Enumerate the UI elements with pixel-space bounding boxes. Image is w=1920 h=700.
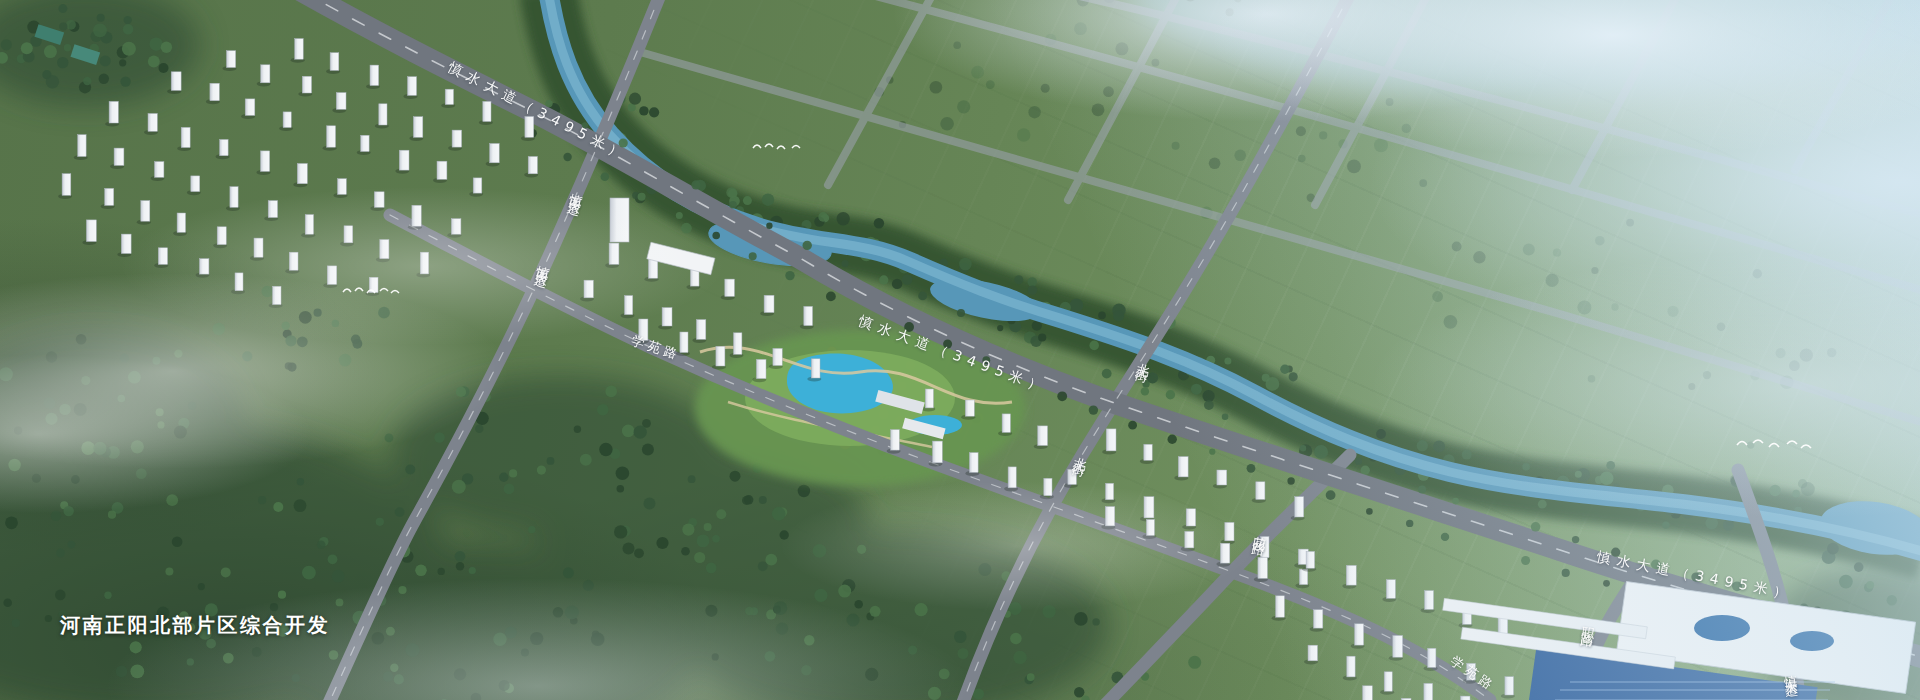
road-label-zhigao-road: 职高路	[1579, 616, 1598, 627]
road-label-bei-street-1: 北大街	[1136, 351, 1156, 365]
label-layer: 慎水大道（3495米） 慎水大道（3495米） 慎水大道（3495米） 慎西大道…	[0, 0, 1920, 700]
project-title: 河南正阳北部片区综合开发	[60, 612, 330, 639]
road-label-shenshui-avenue-center: 慎水大道（3495米）	[856, 312, 1050, 397]
road-label-xueyuan-road-w: 学苑路	[629, 332, 683, 365]
road-label-bei-street-2: 北大街	[1073, 445, 1093, 459]
road-label-huayuan-road: 花园路	[1251, 525, 1270, 537]
birds-icon	[1735, 435, 1815, 451]
birds-icon	[752, 140, 812, 152]
road-label-xueyuan-road-se: 学苑路	[1447, 652, 1499, 695]
road-label-shenxi-avenue-1: 慎西大道	[568, 182, 588, 198]
birds-icon	[342, 284, 402, 296]
road-label-shenxi-avenue-2: 慎西大道	[535, 254, 555, 270]
road-label-shenshui-avenue-nw: 慎水大道（3495米）	[445, 59, 631, 166]
road-label-shendong-avenue: 慎东大道	[1779, 664, 1798, 678]
road-label-shenshui-avenue-se: 慎水大道（3495米）	[1595, 548, 1794, 604]
aerial-render: 慎水大道（3495米） 慎水大道（3495米） 慎水大道（3495米） 慎西大道…	[0, 0, 1920, 700]
